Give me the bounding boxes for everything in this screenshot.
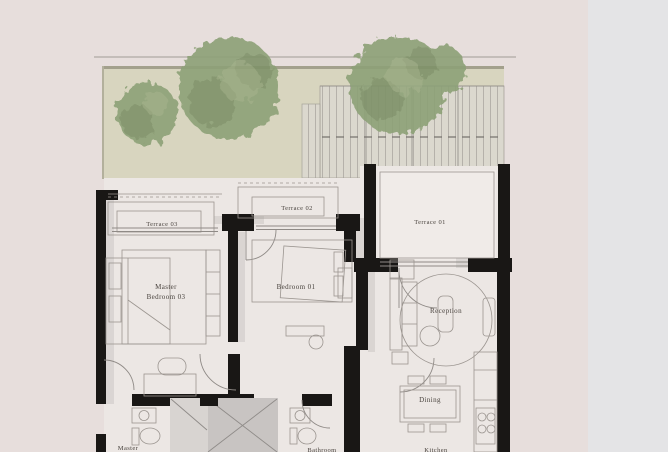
room-label-terrace-03: Terrace 03 xyxy=(146,221,178,228)
screenshot-root: Terrace 03 Terrace 02 Terrace 01 Master … xyxy=(0,0,668,452)
room-label-kitchen: Kitchen xyxy=(424,447,448,452)
garden-left-border xyxy=(102,66,104,179)
floor-plan-svg: Terrace 03 Terrace 02 Terrace 01 Master … xyxy=(0,0,668,452)
room-label-master-bathroom: Master xyxy=(118,445,139,452)
pergola-side-hatch xyxy=(302,104,320,178)
room-label-dining: Dining xyxy=(419,396,441,404)
page-bg xyxy=(588,0,668,452)
room-label-terrace-01: Terrace 01 xyxy=(414,219,446,226)
room-label-bathroom: Bathroom xyxy=(307,447,336,452)
void-shaft xyxy=(170,394,278,452)
room-label-master-bedroom-1: Master xyxy=(155,283,177,291)
room-label-reception: Reception xyxy=(430,307,462,315)
room-label-terrace-02: Terrace 02 xyxy=(281,205,313,212)
void-pillar xyxy=(200,394,218,406)
room-label-master-bedroom-2: Bedroom 03 xyxy=(147,293,186,301)
room-label-bedroom-01: Bedroom 01 xyxy=(277,283,316,291)
terrace-01-floor xyxy=(378,170,496,260)
